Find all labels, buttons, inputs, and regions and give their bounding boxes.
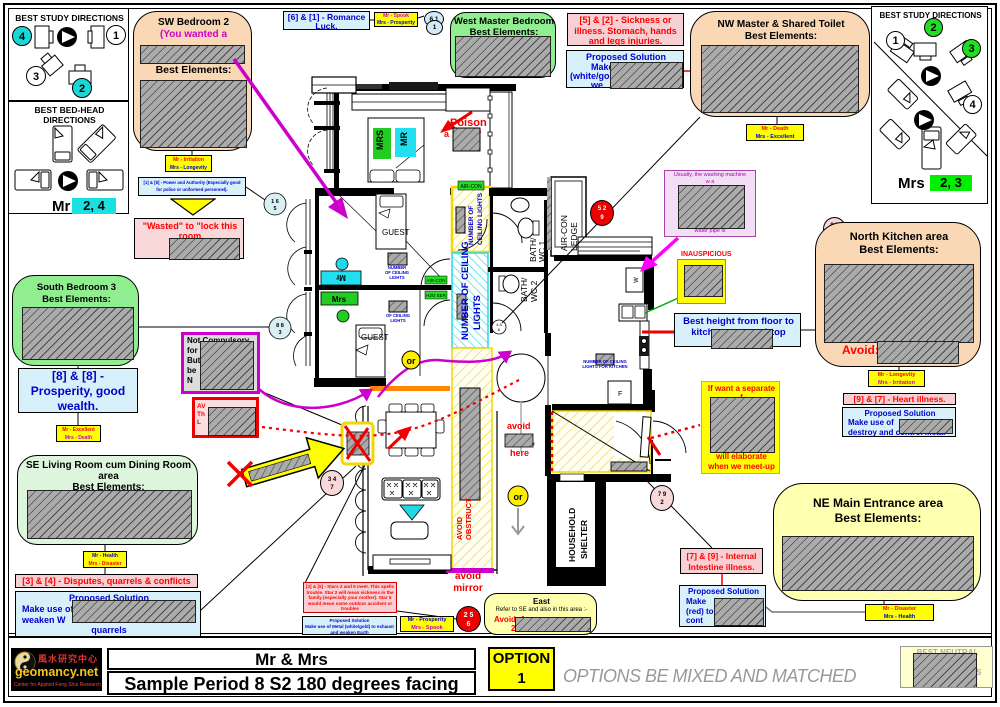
svg-text:avoid: avoid bbox=[455, 571, 481, 582]
svg-text:AVOID: AVOID bbox=[455, 516, 464, 540]
svg-text:CEILING LIGHTS: CEILING LIGHTS bbox=[477, 192, 484, 245]
svg-text:GUEST: GUEST bbox=[382, 228, 410, 237]
svg-text:WC 1: WC 1 bbox=[537, 240, 547, 262]
svg-text:3: 3 bbox=[278, 330, 281, 336]
svg-text:H2O SER: H2O SER bbox=[426, 293, 447, 298]
svg-text:HOUSEHOLD: HOUSEHOLD bbox=[567, 508, 577, 562]
svg-text:here: here bbox=[510, 448, 529, 458]
svg-text:1 6: 1 6 bbox=[271, 199, 279, 205]
svg-text:or: or bbox=[514, 492, 523, 502]
svg-text:AIR-CON: AIR-CON bbox=[559, 215, 569, 251]
svg-text:8 8: 8 8 bbox=[276, 323, 284, 329]
svg-text:AIR-CON: AIR-CON bbox=[427, 278, 446, 283]
svg-text:Poison: Poison bbox=[450, 117, 487, 129]
svg-text:MRS: MRS bbox=[375, 130, 385, 150]
svg-text:NUMBER OF: NUMBER OF bbox=[468, 206, 475, 245]
svg-text:F: F bbox=[618, 391, 622, 398]
svg-text:MR: MR bbox=[399, 132, 409, 146]
svg-text:LIGHTS: LIGHTS bbox=[390, 318, 406, 323]
svg-text:W: W bbox=[634, 277, 640, 283]
svg-text:LIGHTS: LIGHTS bbox=[389, 275, 405, 280]
svg-text:Mr: Mr bbox=[336, 273, 346, 282]
svg-text:WC 2: WC 2 bbox=[529, 280, 539, 302]
svg-text:LIGHTS: LIGHTS bbox=[472, 295, 483, 330]
svg-text:SHELTER: SHELTER bbox=[579, 520, 589, 559]
svg-text:Mrs: Mrs bbox=[332, 295, 347, 304]
svg-text:NUMBER OF CEILING: NUMBER OF CEILING bbox=[460, 241, 471, 340]
svg-text:BATH/: BATH/ bbox=[519, 277, 529, 302]
svg-text:LIGHTS FOR KITCHEN: LIGHTS FOR KITCHEN bbox=[582, 364, 627, 369]
svg-text:OBSTRUCT: OBSTRUCT bbox=[464, 498, 473, 540]
svg-text:a: a bbox=[444, 129, 450, 139]
svg-text:or: or bbox=[407, 356, 416, 366]
svg-text:GUEST: GUEST bbox=[361, 333, 389, 342]
svg-text:5: 5 bbox=[273, 206, 276, 212]
svg-text:AIR-CON: AIR-CON bbox=[460, 184, 482, 190]
svg-text:avoid: avoid bbox=[507, 421, 531, 431]
svg-text:mirror: mirror bbox=[453, 583, 483, 594]
